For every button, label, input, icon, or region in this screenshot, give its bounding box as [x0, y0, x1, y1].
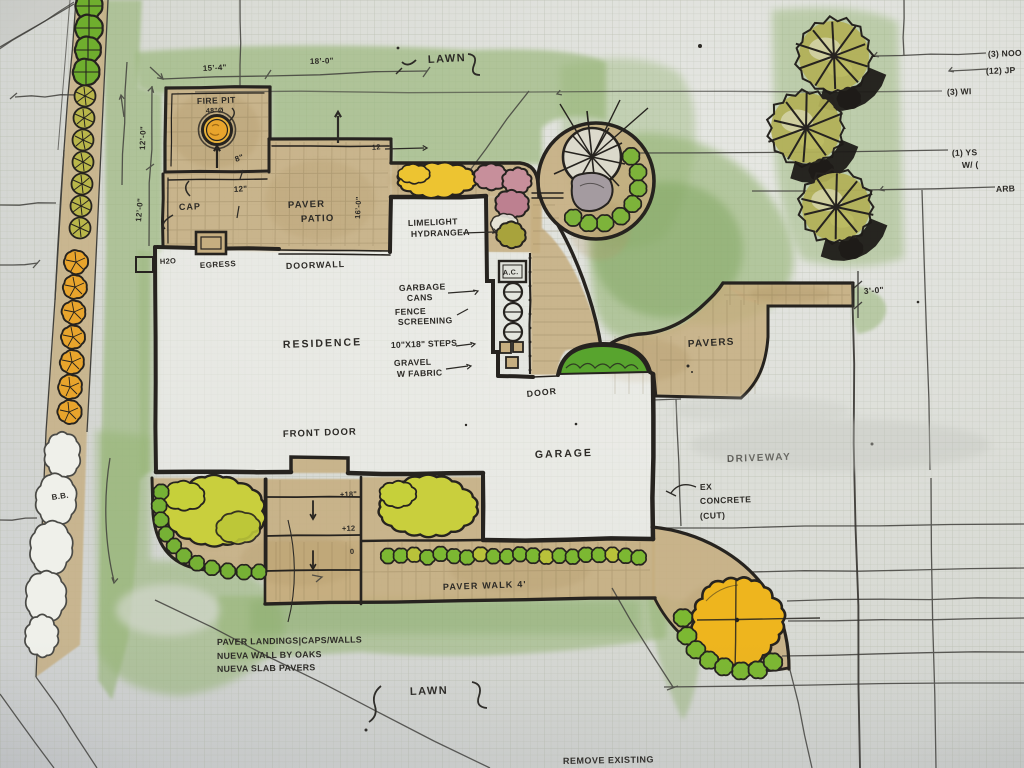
svg-text:(3) NOO: (3) NOO: [988, 48, 1022, 59]
svg-text:GARBAGE: GARBAGE: [399, 281, 446, 293]
svg-text:CAP: CAP: [179, 201, 201, 212]
svg-text:16’-0": 16’-0": [353, 196, 363, 219]
svg-text:0: 0: [350, 547, 355, 556]
svg-text:H2O: H2O: [160, 256, 177, 266]
svg-text:LAWN: LAWN: [428, 52, 467, 66]
svg-text:(1) YS: (1) YS: [952, 147, 978, 158]
svg-text:18’-0": 18’-0": [310, 56, 334, 66]
svg-text:SCREENING: SCREENING: [398, 315, 453, 327]
svg-text:W FABRIC: W FABRIC: [397, 367, 443, 379]
svg-text:48"Ø: 48"Ø: [206, 107, 224, 115]
svg-text:CONCRETE: CONCRETE: [700, 494, 752, 506]
svg-text:12": 12": [234, 184, 248, 194]
svg-text:PAVER: PAVER: [288, 199, 326, 211]
svg-text:(CUT): (CUT): [700, 510, 726, 521]
svg-text:+12: +12: [342, 524, 356, 533]
svg-text:CANS: CANS: [407, 292, 433, 303]
svg-text:ARB: ARB: [996, 183, 1016, 194]
svg-text:LIMELIGHT: LIMELIGHT: [408, 216, 459, 228]
svg-text:15’-4": 15’-4": [203, 63, 227, 73]
svg-text:GRAVEL: GRAVEL: [394, 357, 432, 368]
svg-text:12’-0": 12’-0": [138, 126, 148, 150]
svg-text:EGRESS: EGRESS: [200, 259, 237, 270]
svg-text:A.C.: A.C.: [503, 267, 519, 277]
svg-text:DOORWALL: DOORWALL: [286, 259, 345, 271]
svg-text:3’-0": 3’-0": [863, 285, 884, 296]
svg-text:12: 12: [371, 142, 381, 152]
svg-text:PATIO: PATIO: [301, 213, 335, 225]
svg-text:W/ (: W/ (: [962, 159, 979, 170]
svg-text:GARAGE: GARAGE: [535, 447, 593, 461]
svg-text:(12) JP: (12) JP: [986, 65, 1016, 76]
svg-text:(3) WI: (3) WI: [947, 86, 972, 97]
svg-text:EX: EX: [700, 482, 713, 492]
svg-text:FIRE PIT: FIRE PIT: [197, 95, 237, 106]
svg-text:HYDRANGEA: HYDRANGEA: [411, 227, 470, 239]
svg-text:+18": +18": [340, 489, 358, 499]
